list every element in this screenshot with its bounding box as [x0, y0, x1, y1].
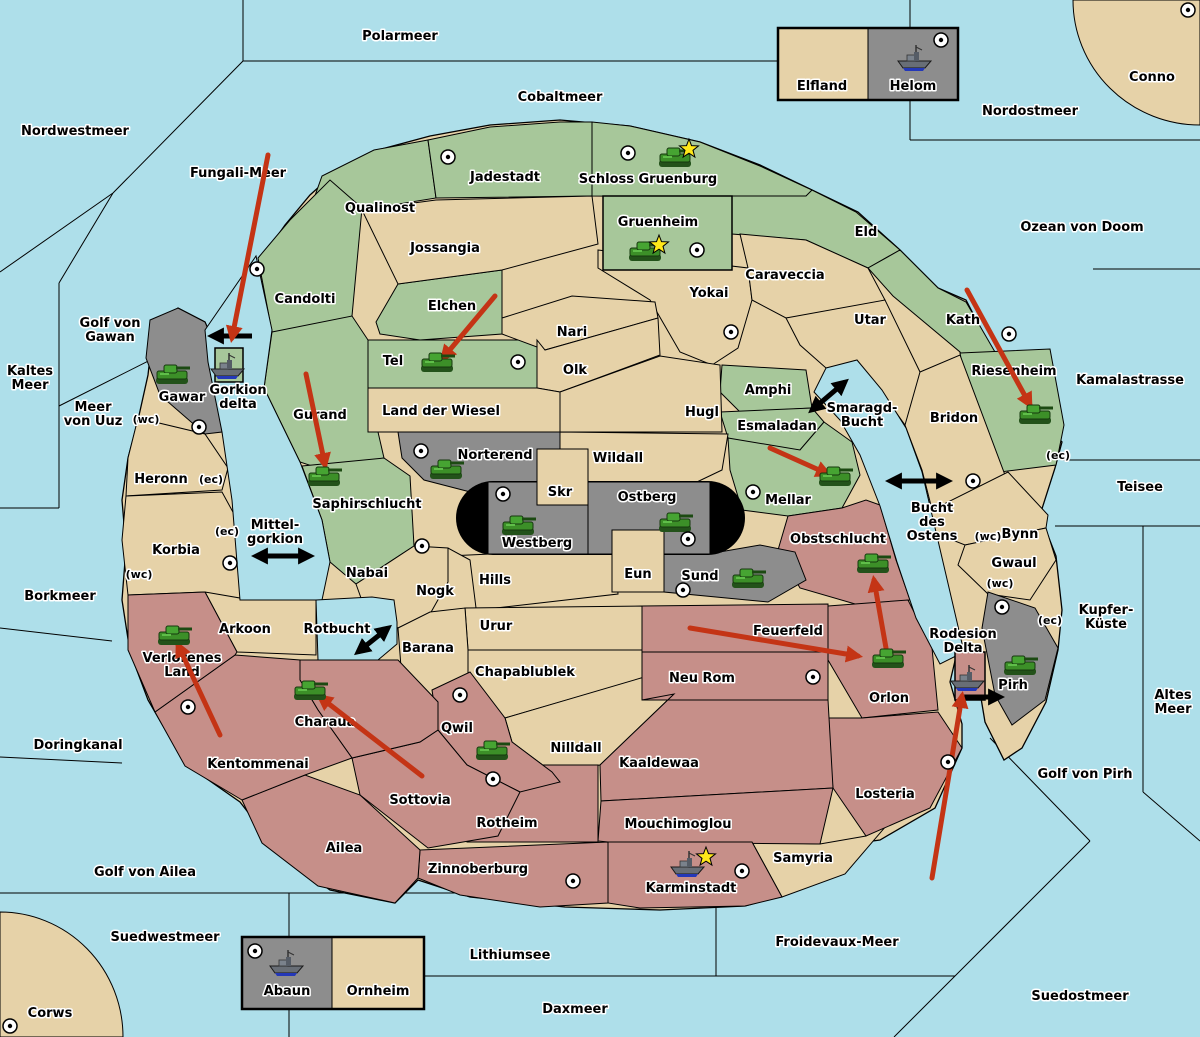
neutral-dot-marker: [192, 420, 206, 434]
territory-label-ornheim: Ornheim: [347, 984, 410, 999]
coast-marker-wc: (wc): [133, 413, 160, 426]
sea-label-rotbucht: Rotbucht: [304, 622, 371, 637]
neutral-dot-marker: [1181, 3, 1195, 17]
territory-label-arkoon: Arkoon: [219, 622, 271, 637]
territory-label-eun: Eun: [624, 567, 651, 582]
territory-label-nilldall: Nilldall: [550, 741, 601, 756]
sea-label-doringkanal: Doringkanal: [33, 738, 122, 753]
territory-label-hugl: Hugl: [685, 405, 719, 420]
territory-label-mouchimoglou: Mouchimoglou: [625, 817, 732, 832]
territory-label-jadestadt: Jadestadt: [469, 170, 540, 185]
territory-label-neu-rom: Neu Rom: [669, 671, 735, 686]
territory-label-urur: Urur: [480, 619, 513, 634]
territory-label-korbia: Korbia: [152, 543, 200, 558]
territory-label-candolti: Candolti: [275, 292, 336, 307]
game-map-stage: QualinostJadestadtSchloss GruenburgEldKa…: [0, 0, 1200, 1037]
sea-label-kaltes-meer: KaltesMeer: [7, 364, 53, 393]
coast-marker-ec: (ec): [215, 525, 239, 538]
neutral-dot-marker: [511, 355, 525, 369]
territory-label-utar: Utar: [854, 313, 887, 328]
sea-label-borkmeer: Borkmeer: [24, 589, 96, 604]
territory-label-bynn: Bynn: [1002, 527, 1039, 542]
territory-label-amphi: Amphi: [745, 383, 792, 398]
sea-label-kupfer-k-ste: Kupfer-Küste: [1079, 603, 1134, 632]
territory-label-sottovia: Sottovia: [389, 793, 450, 808]
neutral-dot-marker: [621, 146, 635, 160]
neutral-dot-marker: [496, 487, 510, 501]
territory-label-schloss-gruenburg: Schloss Gruenburg: [579, 172, 717, 187]
territory-label-nogk: Nogk: [416, 584, 454, 599]
territory-label-sund: Sund: [681, 569, 718, 584]
territory-label-hills: Hills: [479, 573, 511, 588]
territory-label-chapablublek: Chapablublek: [475, 665, 575, 680]
territory-label-barana: Barana: [402, 641, 454, 656]
territory-label-heronn: Heronn: [134, 472, 188, 487]
territory-label-gawar: Gawar: [159, 390, 206, 405]
neutral-dot-marker: [941, 755, 955, 769]
territory-label-yokai: Yokai: [688, 286, 728, 301]
neutral-dot-marker: [806, 670, 820, 684]
neutral-dot-marker: [415, 539, 429, 553]
neutral-dot-marker: [248, 944, 262, 958]
neutral-dot-marker: [250, 262, 264, 276]
sea-label-ozean-von-doom: Ozean von Doom: [1020, 220, 1143, 235]
territory-label-conno: Conno: [1129, 70, 1175, 85]
sea-label-altes-meer: AltesMeer: [1154, 688, 1192, 717]
territory-label-samyria: Samyria: [773, 851, 833, 866]
coast-marker-wc: (wc): [975, 530, 1002, 543]
coast-marker-wc: (wc): [126, 568, 153, 581]
territory-label-corws: Corws: [28, 1006, 73, 1021]
neutral-dot-marker: [486, 772, 500, 786]
neutral-dot-marker: [441, 150, 455, 164]
territory-label-bridon: Bridon: [930, 411, 978, 426]
sea-label-cobaltmeer: Cobaltmeer: [518, 90, 603, 105]
coast-marker-ec: (ec): [1038, 614, 1062, 627]
territory-label-tel: Tel: [383, 354, 403, 369]
territory-label-orlon: Orlon: [869, 691, 909, 706]
territory-label-saphirschlucht: Saphirschlucht: [312, 497, 421, 512]
territory-gruenheim[interactable]: [603, 196, 732, 270]
territory-label-gwaul: Gwaul: [991, 556, 1036, 571]
sea-label-mittel-gorkion: Mittel-gorkion: [247, 518, 303, 547]
territory-label-obstschlucht: Obstschlucht: [790, 532, 886, 547]
territory-label-helom: Helom: [890, 79, 937, 94]
territory-label-ailea: Ailea: [326, 841, 363, 856]
sea-label-golf-von-gawan: Golf vonGawan: [80, 316, 141, 345]
territory-label-elfland: Elfland: [797, 79, 847, 94]
neutral-dot-marker: [724, 325, 738, 339]
coast-marker-ec: (ec): [1046, 449, 1070, 462]
sea-label-suedostmeer: Suedostmeer: [1031, 989, 1129, 1004]
territory-label-kaaldewaa: Kaaldewaa: [619, 756, 699, 771]
territory-label-qwil: Qwil: [441, 721, 473, 736]
territory-label-kentommenai: Kentommenai: [207, 757, 308, 772]
neutral-dot-marker: [735, 864, 749, 878]
sea-label-golf-von-pirh: Golf von Pirh: [1037, 767, 1132, 782]
neutral-dot-marker: [181, 700, 195, 714]
sea-label-polarmeer: Polarmeer: [362, 29, 438, 44]
territory-label-land-der-wiesel: Land der Wiesel: [382, 404, 500, 419]
sea-label-froidevaux-meer: Froidevaux-Meer: [775, 935, 899, 950]
territory-label-olk: Olk: [563, 363, 588, 378]
territory-label-mellar: Mellar: [765, 493, 811, 508]
territory-label-nari: Nari: [557, 325, 588, 340]
neutral-dot-marker: [995, 600, 1009, 614]
neutral-dot-marker: [690, 243, 704, 257]
territory-label-skr: Skr: [548, 485, 573, 500]
neutral-dot-marker: [676, 583, 690, 597]
territory-label-norterend: Norterend: [457, 448, 532, 463]
sea-label-fungali-meer: Fungali-Meer: [190, 166, 287, 181]
territory-label-karminstadt: Karminstadt: [646, 881, 737, 896]
sea-label-lithiumsee: Lithiumsee: [470, 948, 551, 963]
territory-label-wildall: Wildall: [593, 451, 643, 466]
territory-label-gurand: Gurand: [293, 408, 347, 423]
neutral-dot-marker: [966, 474, 980, 488]
coast-marker-wc: (wc): [987, 577, 1014, 590]
territory-label-esmaladan: Esmaladan: [737, 419, 817, 434]
territory-label-caraveccia: Caraveccia: [745, 268, 824, 283]
sea-label-nordostmeer: Nordostmeer: [982, 104, 1079, 119]
territory-eun[interactable]: [612, 530, 664, 592]
sea-label-golf-von-ailea: Golf von Ailea: [94, 865, 196, 880]
territory-label-abaun: Abaun: [264, 984, 311, 999]
territory-label-qualinost: Qualinost: [345, 201, 415, 216]
territory-label-eld: Eld: [855, 225, 878, 240]
sea-label-nordwestmeer: Nordwestmeer: [21, 124, 129, 139]
territory-label-ostberg: Ostberg: [618, 490, 677, 505]
neutral-dot-marker: [223, 556, 237, 570]
territory-label-jossangia: Jossangia: [409, 241, 480, 256]
territory-label-losteria: Losteria: [855, 787, 915, 802]
neutral-dot-marker: [746, 485, 760, 499]
sea-label-kamalastrasse: Kamalastrasse: [1076, 373, 1184, 388]
territory-label-zinnoberburg: Zinnoberburg: [428, 862, 528, 877]
neutral-dot-marker: [414, 444, 428, 458]
territory-label-elchen: Elchen: [428, 299, 476, 314]
neutral-dot-marker: [566, 874, 580, 888]
sea-label-daxmeer: Daxmeer: [542, 1002, 608, 1017]
territory-label-kath: Kath: [946, 313, 980, 328]
neutral-dot-marker: [1002, 327, 1016, 341]
neutral-dot-marker: [3, 1019, 17, 1033]
territory-label-nabai: Nabai: [346, 566, 388, 581]
sea-label-suedwestmeer: Suedwestmeer: [110, 930, 220, 945]
territory-label-pirh: Pirh: [998, 678, 1028, 693]
territory-label-westberg: Westberg: [502, 536, 572, 551]
territory-label-feuerfeld: Feuerfeld: [753, 624, 823, 639]
neutral-dot-marker: [453, 688, 467, 702]
territory-label-gruenheim: Gruenheim: [618, 215, 698, 230]
neutral-dot-marker: [681, 532, 695, 546]
coast-marker-ec: (ec): [199, 473, 223, 486]
neutral-dot-marker: [934, 33, 948, 47]
map-canvas: QualinostJadestadtSchloss GruenburgEldKa…: [0, 0, 1200, 1037]
sea-label-teisee: Teisee: [1117, 480, 1163, 495]
territory-label-rotheim: Rotheim: [476, 816, 537, 831]
